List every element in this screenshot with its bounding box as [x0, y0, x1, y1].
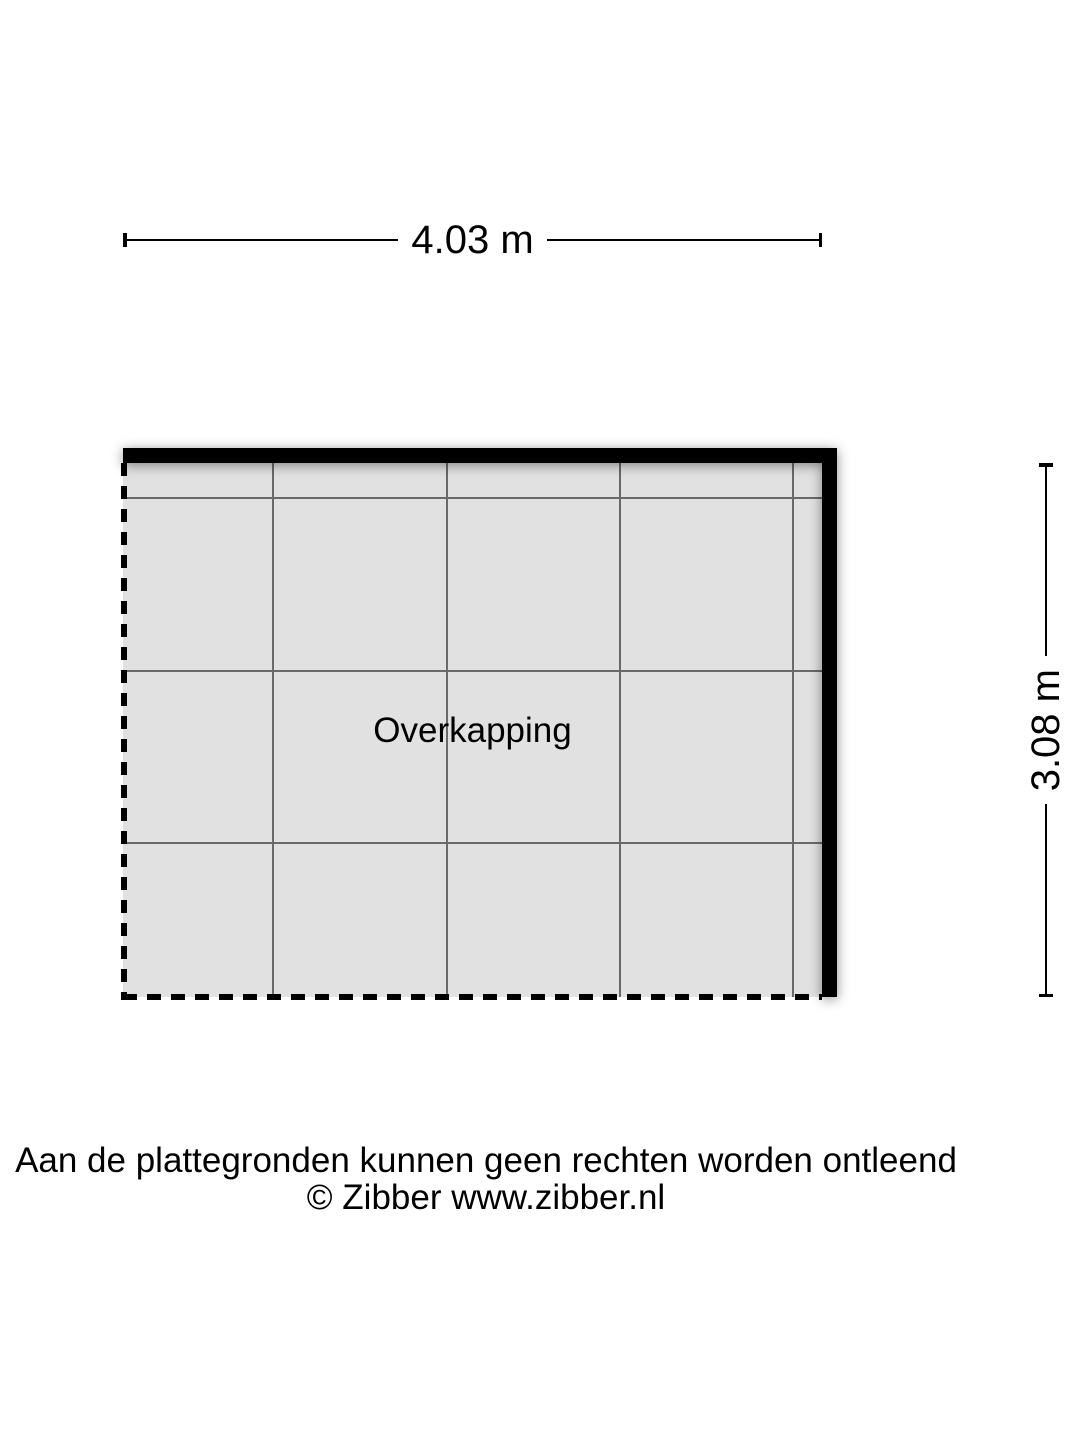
left-boundary-dashed: [121, 463, 127, 1000]
footer: Aan de plattegronden kunnen geen rechten…: [0, 1142, 972, 1216]
floorplan-canvas: 4.03 m Overkapping 3.08 m: [0, 0, 1080, 1440]
top-wall: [123, 448, 837, 463]
height-dimension: 3.08 m: [1039, 463, 1053, 997]
bottom-boundary-dashed: [123, 994, 822, 1000]
dimension-line-segment: [1045, 467, 1048, 656]
room-label-container: Overkapping: [123, 463, 822, 997]
dimension-line-segment: [127, 239, 399, 242]
room-label: Overkapping: [373, 713, 571, 748]
dimension-line-segment: [547, 239, 819, 242]
width-dimension-label: 4.03 m: [411, 220, 533, 260]
copyright-text: © Zibber www.zibber.nl: [0, 1179, 972, 1216]
disclaimer-text: Aan de plattegronden kunnen geen rechten…: [0, 1142, 972, 1179]
room-overkapping: Overkapping: [123, 448, 837, 997]
dimension-cap-bottom: [1039, 994, 1053, 998]
dimension-cap-right: [819, 233, 823, 247]
width-dimension: 4.03 m: [123, 233, 822, 247]
height-dimension-label: 3.08 m: [1026, 669, 1066, 791]
right-wall: [822, 448, 837, 997]
dimension-line-segment: [1045, 804, 1048, 993]
